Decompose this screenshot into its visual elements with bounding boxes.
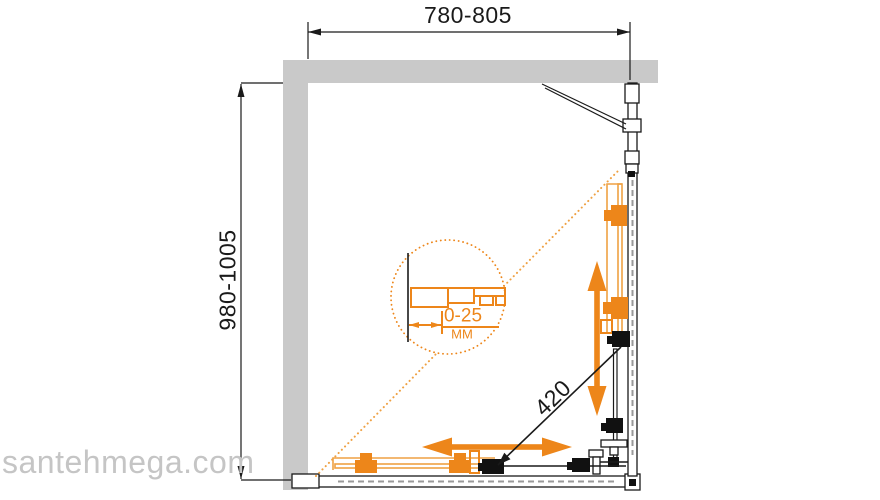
dimension-width-label: 780-805	[398, 4, 538, 27]
bottom-corner-roller-icon	[567, 458, 590, 472]
door-roller-icon	[355, 453, 377, 473]
dim-arrow-up-icon	[238, 84, 245, 97]
detail-adjustment-value-label: 0-25	[444, 307, 482, 326]
shower-enclosure-plan-drawing: 780-805 980-1005 420 0-25 мм santehmega.…	[0, 0, 880, 500]
sliding-door-bottom	[333, 451, 504, 474]
wall-top	[283, 60, 658, 83]
side-panel-right	[623, 83, 641, 476]
dimension-depth-label: 980-1005	[217, 229, 240, 330]
dim-arrow-left-icon	[308, 29, 321, 36]
slide-arrow-horizontal-icon	[422, 438, 572, 457]
bottom-rail	[292, 474, 640, 490]
technical-drawing-canvas	[0, 0, 880, 500]
wall-left	[283, 60, 308, 490]
door-roller-icon	[449, 453, 471, 473]
support-bar	[542, 84, 626, 129]
detail-adjustment-unit-label: мм	[451, 328, 473, 341]
lower-roller-icon	[601, 418, 623, 433]
site-watermark: santehmega.com	[2, 444, 254, 481]
slide-arrow-vertical-icon	[588, 261, 607, 416]
dim-arrow-right-icon	[617, 29, 630, 36]
dimension-left	[238, 83, 292, 480]
sliding-door-right	[497, 184, 630, 474]
detail-circle	[391, 240, 505, 354]
